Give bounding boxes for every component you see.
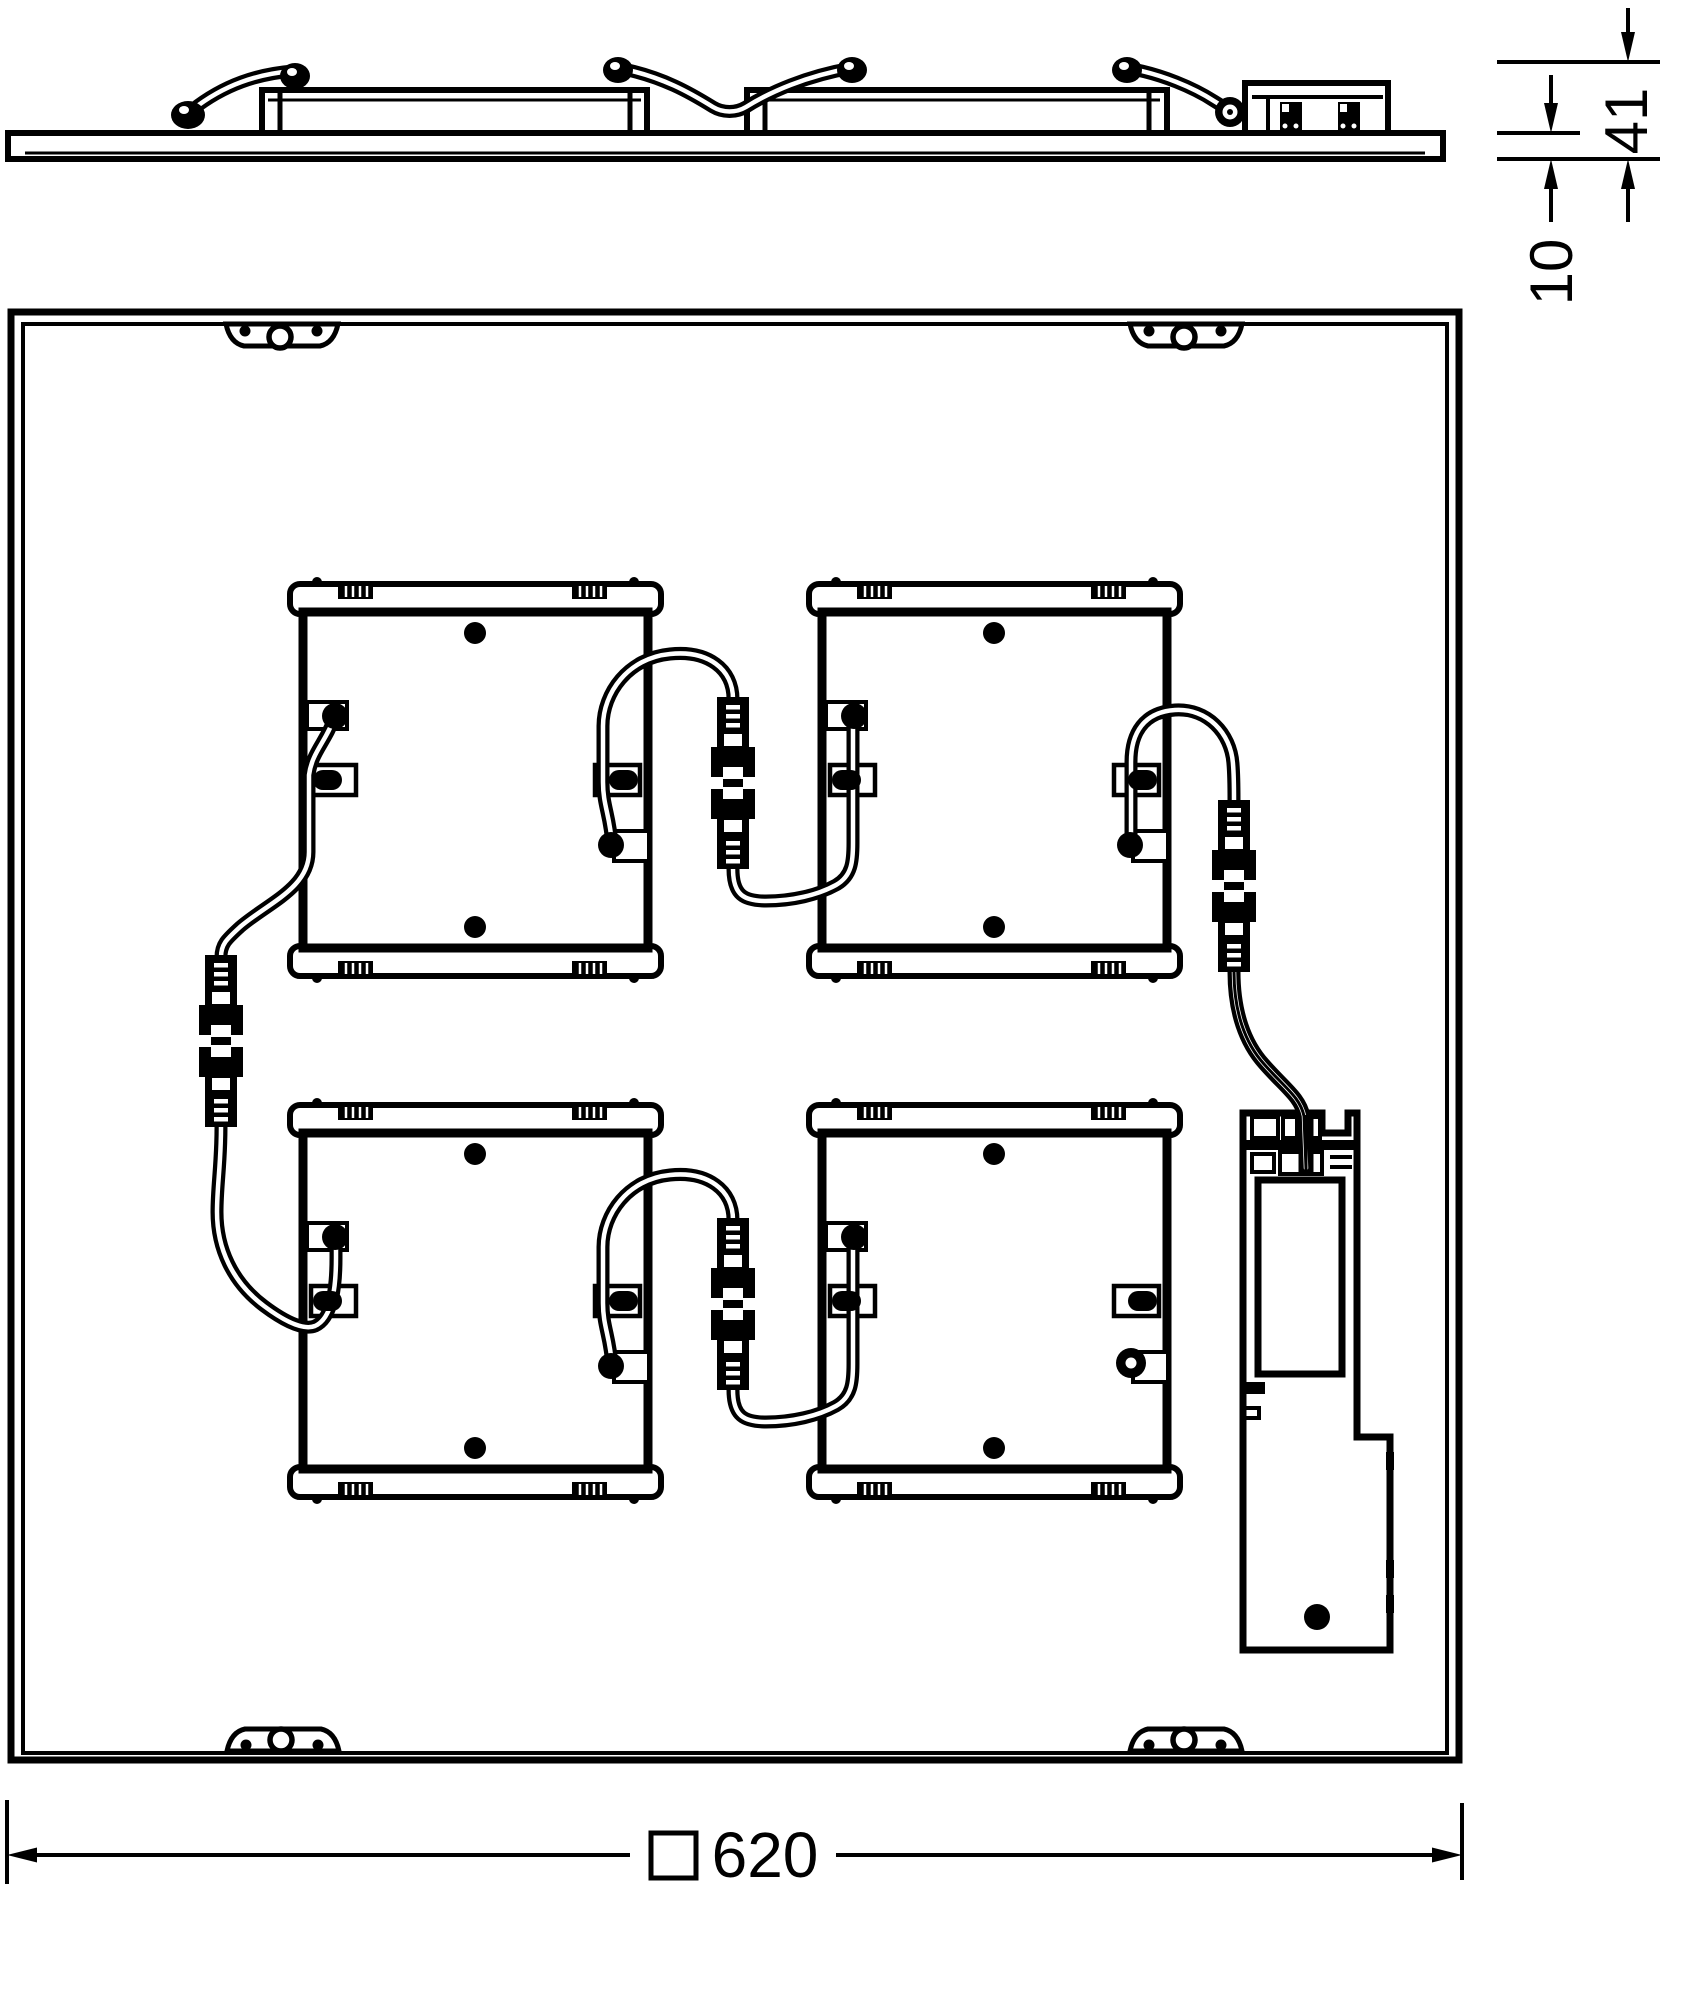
dimension-panel-thickness: 10	[1497, 75, 1585, 305]
overall-height-label: 41	[1593, 88, 1660, 155]
arrowhead-icon	[1621, 32, 1635, 62]
square-symbol-icon	[651, 1833, 696, 1878]
driver-profile	[1215, 83, 1388, 133]
side-profile-view	[8, 57, 1443, 162]
panel-thickness-label: 10	[1518, 239, 1585, 306]
led-module-profile-1	[262, 90, 647, 133]
arrowhead-icon	[7, 1848, 37, 1863]
led-module-bottom-right	[809, 1098, 1180, 1504]
arrowhead-icon	[1432, 1848, 1462, 1863]
arrowhead-icon	[1544, 159, 1558, 189]
driver-body	[1258, 1180, 1342, 1374]
panel-size-label: 620	[712, 1819, 819, 1891]
mounting-bracket-bottom-right	[1130, 1729, 1242, 1751]
mounting-bracket-top-right	[1130, 324, 1242, 348]
driver-screw-dot	[1304, 1604, 1330, 1630]
led-module-top-right	[809, 577, 1180, 983]
technical-drawing: 41 10	[0, 0, 1701, 2000]
dimension-overall-height: 41	[1497, 8, 1660, 222]
mounting-bracket-top-left	[226, 324, 338, 348]
cable-plug-profile	[171, 101, 205, 129]
arrowhead-icon	[1621, 159, 1635, 189]
drawing-canvas: 41 10	[0, 0, 1701, 2000]
panel-slab-profile	[8, 133, 1443, 162]
led-module-profile-2	[747, 90, 1167, 133]
arrowhead-icon	[1544, 103, 1558, 133]
mounting-bracket-bottom-left	[227, 1729, 339, 1751]
rear-plan-view	[11, 312, 1459, 1760]
dimension-panel-size: 620	[7, 1800, 1462, 1891]
